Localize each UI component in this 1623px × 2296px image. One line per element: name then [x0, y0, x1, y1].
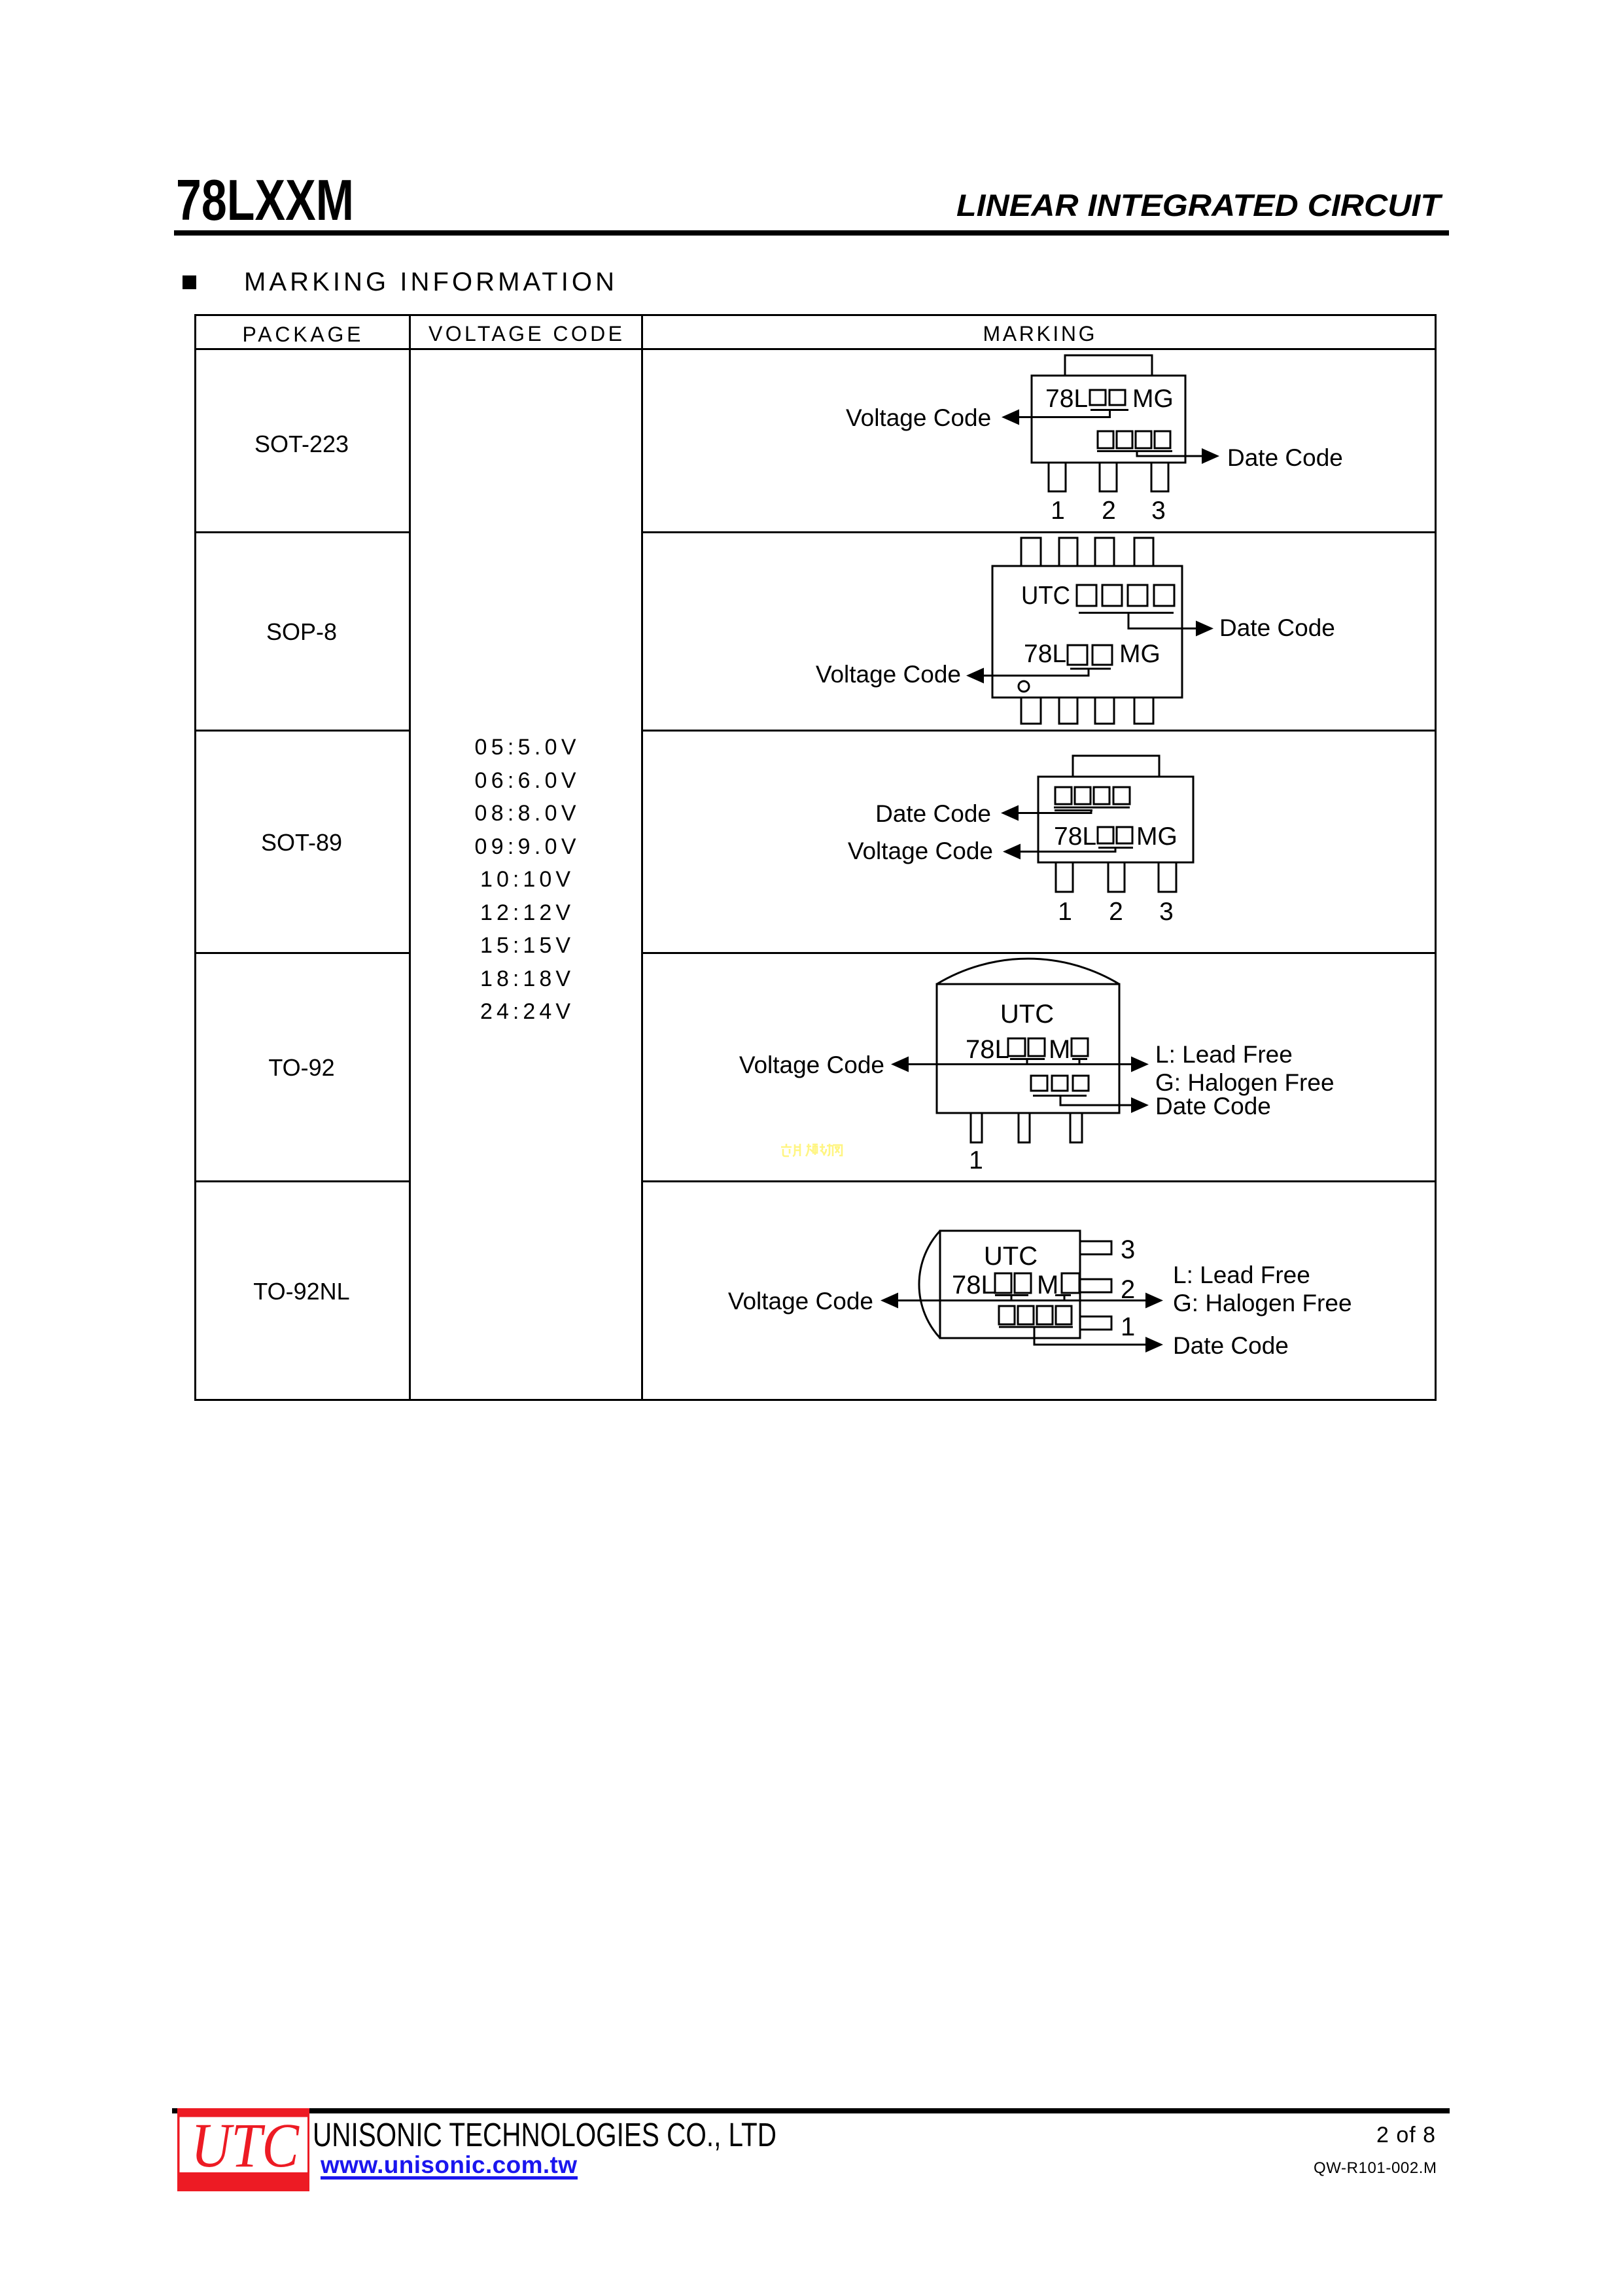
svg-text:Date Code: Date Code: [1155, 1093, 1271, 1120]
svg-text:3: 3: [1159, 898, 1174, 926]
svg-text:Voltage Code: Voltage Code: [848, 838, 993, 864]
svg-text:UTC: UTC: [1021, 582, 1070, 610]
svg-text:L: Lead Free: L: Lead Free: [1173, 1262, 1310, 1288]
svg-text:05:5.0V: 05:5.0V: [475, 735, 576, 760]
svg-text:SOT-223: SOT-223: [254, 431, 349, 457]
svg-text:MARKING INFORMATION: MARKING INFORMATION: [244, 268, 614, 296]
svg-text:78L: 78L: [1045, 385, 1088, 413]
svg-text:Voltage Code: Voltage Code: [846, 404, 991, 431]
svg-text:78L: 78L: [1024, 640, 1066, 668]
svg-text:18:18V: 18:18V: [480, 966, 570, 991]
svg-text:G: Halogen Free: G: Halogen Free: [1155, 1069, 1335, 1096]
svg-text:06:6.0V: 06:6.0V: [475, 768, 576, 793]
svg-text:2: 2: [1102, 497, 1116, 525]
svg-text:2: 2: [1121, 1275, 1135, 1304]
svg-text:Date Code: Date Code: [1173, 1332, 1289, 1359]
svg-text:MARKING: MARKING: [983, 322, 1095, 345]
svg-text:78LXXM: 78LXXM: [176, 168, 354, 232]
svg-text:12:12V: 12:12V: [480, 900, 570, 925]
svg-text:UTC: UTC: [1000, 1000, 1054, 1029]
svg-text:Voltage Code: Voltage Code: [816, 661, 961, 688]
svg-text:MG: MG: [1136, 822, 1178, 851]
svg-text:M: M: [1037, 1271, 1058, 1299]
svg-text:Date Code: Date Code: [875, 800, 991, 827]
svg-text:UTC: UTC: [984, 1242, 1038, 1271]
svg-text:LINEAR INTEGRATED CIRCUIT: LINEAR INTEGRATED CIRCUIT: [956, 188, 1444, 222]
svg-text:QW-R101-002.M: QW-R101-002.M: [1314, 2159, 1437, 2177]
svg-text:SOP-8: SOP-8: [266, 618, 337, 645]
svg-text:1: 1: [969, 1146, 983, 1174]
svg-text:1: 1: [1051, 497, 1065, 525]
svg-text:2: 2: [1109, 898, 1123, 926]
svg-text:24:24V: 24:24V: [480, 999, 570, 1024]
svg-text:UTC: UTC: [191, 2110, 300, 2180]
svg-text:08:8.0V: 08:8.0V: [475, 801, 576, 826]
svg-text:2 of 8: 2 of 8: [1376, 2123, 1435, 2147]
svg-text:VOLTAGE CODE: VOLTAGE CODE: [428, 322, 622, 345]
svg-text:L: Lead Free: L: Lead Free: [1155, 1041, 1293, 1068]
svg-text:UNISONIC TECHNOLOGIES CO., LTD: UNISONIC TECHNOLOGIES CO., LTD: [313, 2116, 777, 2153]
svg-text:Voltage Code: Voltage Code: [739, 1051, 884, 1078]
svg-text:PACKAGE: PACKAGE: [243, 323, 361, 346]
svg-text:TO-92NL: TO-92NL: [253, 1278, 349, 1305]
svg-text:Voltage Code: Voltage Code: [728, 1288, 873, 1315]
svg-text:Date Code: Date Code: [1227, 444, 1343, 471]
svg-text:1: 1: [1121, 1313, 1135, 1341]
svg-text:09:9.0V: 09:9.0V: [475, 834, 576, 859]
svg-text:MG: MG: [1132, 385, 1174, 413]
svg-text:78L: 78L: [966, 1035, 1009, 1064]
svg-text:SOT-89: SOT-89: [261, 829, 342, 856]
svg-text:78L: 78L: [1054, 822, 1096, 851]
svg-text:Date Code: Date Code: [1219, 614, 1335, 641]
svg-text:3: 3: [1121, 1235, 1135, 1264]
svg-text:78L: 78L: [952, 1271, 996, 1299]
svg-text:M: M: [1049, 1035, 1070, 1064]
svg-text:TO-92: TO-92: [268, 1054, 334, 1081]
svg-text:www.unisonic.com.tw: www.unisonic.com.tw: [320, 2151, 577, 2178]
svg-text:1: 1: [1058, 898, 1072, 926]
svg-text:15:15V: 15:15V: [480, 933, 570, 958]
svg-text:10:10V: 10:10V: [480, 867, 570, 892]
svg-text:3: 3: [1151, 497, 1166, 525]
svg-text:G: Halogen Free: G: Halogen Free: [1173, 1290, 1352, 1316]
svg-text:MG: MG: [1119, 640, 1161, 668]
